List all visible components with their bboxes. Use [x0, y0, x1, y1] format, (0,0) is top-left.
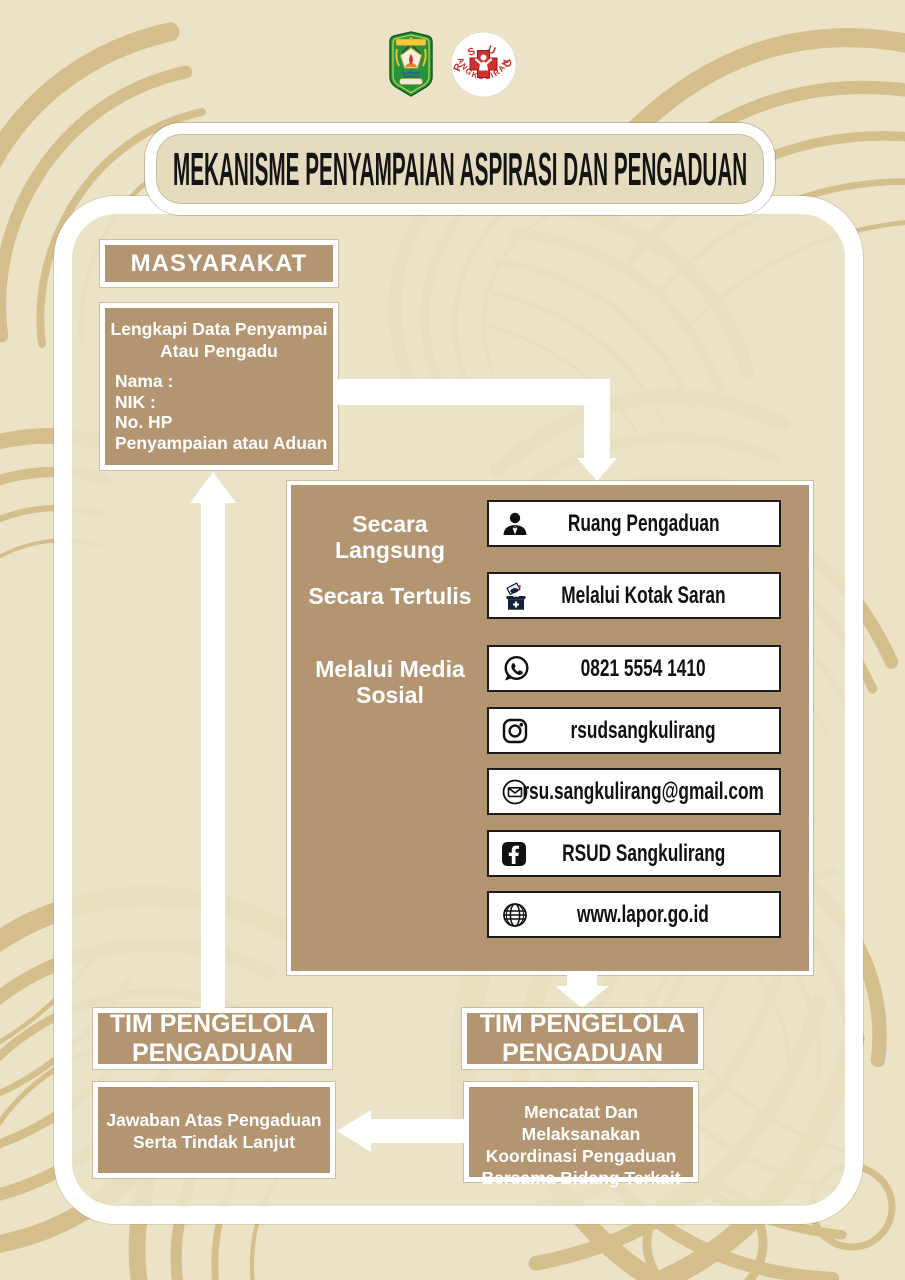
channel-row-facebook: RSUD Sangkulirang — [487, 830, 781, 877]
channel-row-email: rsu.sangkulirang@gmail.com — [487, 768, 781, 815]
field-nama: Nama : — [115, 371, 333, 392]
globe-icon — [500, 900, 530, 930]
team-left-desc-box: Jawaban Atas Pengaduan Serta Tindak Lanj… — [93, 1082, 335, 1178]
title-banner: MEKANISME PENYAMPAIAN ASPIRASI DAN PENGA… — [145, 123, 775, 215]
arrow-channels-to-team-head — [555, 986, 609, 1008]
aspiration-complaint-flow-poster: R S U D SANGKULIRANG MEKANISME PENYAMPAI… — [0, 0, 905, 1280]
channel-row-instagram: rsudsangkulirang — [487, 707, 781, 754]
arrow-data-to-channels-horizontal — [338, 379, 588, 405]
team-left-box: TIM PENGELOLA PENGADUAN — [93, 1008, 332, 1069]
facebook-icon — [500, 840, 528, 868]
data-box-title: Lengkapi Data Penyampai Atau Pengadu — [105, 308, 333, 362]
complainant-data-box: Lengkapi Data Penyampai Atau Pengadu Nam… — [100, 303, 338, 470]
masyarakat-label: MASYARAKAT — [131, 250, 308, 278]
team-right-box: TIM PENGELOLA PENGADUAN — [462, 1008, 703, 1069]
arrow-data-to-channels-vertical — [584, 379, 610, 459]
field-nohp: No. HP — [115, 412, 333, 433]
data-box-fields: Nama : NIK : No. HP Penyampaian atau Adu… — [105, 362, 333, 453]
channel-row-whatsapp: 0821 5554 1410 — [487, 645, 781, 692]
rsud-sangkulirang-logo: R S U D SANGKULIRANG — [450, 31, 517, 98]
arrow-right-to-left-head — [337, 1110, 371, 1152]
method-media-sosial: Melalui Media Sosial — [297, 656, 483, 708]
whatsapp-icon — [500, 653, 532, 685]
channel-row-ruang-pengaduan: Ruang Pengaduan — [487, 500, 781, 547]
person-icon — [500, 509, 530, 539]
page-title: MEKANISME PENYAMPAIAN ASPIRASI DAN PENGA… — [173, 142, 747, 196]
method-secara-tertulis: Secara Tertulis — [297, 583, 483, 609]
kutai-timur-emblem-logo — [388, 31, 434, 97]
field-nik: NIK : — [115, 392, 333, 413]
instagram-icon — [500, 716, 530, 746]
team-right-desc-box: Mencatat Dan Melaksanakan Koordinasi Pen… — [464, 1082, 698, 1182]
channel-row-kotak-saran: Melalui Kotak Saran — [487, 572, 781, 619]
suggestion-box-icon — [500, 580, 532, 612]
field-penyampaian: Penyampaian atau Aduan — [115, 433, 333, 454]
arrow-team-to-data-head — [190, 472, 236, 503]
masyarakat-box: MASYARAKAT — [100, 240, 338, 287]
channel-row-website: www.lapor.go.id — [487, 891, 781, 938]
arrow-right-to-left-shaft — [370, 1119, 464, 1143]
method-secara-langsung: Secara Langsung — [297, 511, 483, 563]
arrow-down-head — [577, 458, 617, 481]
arrow-team-to-data-shaft — [201, 502, 225, 1008]
